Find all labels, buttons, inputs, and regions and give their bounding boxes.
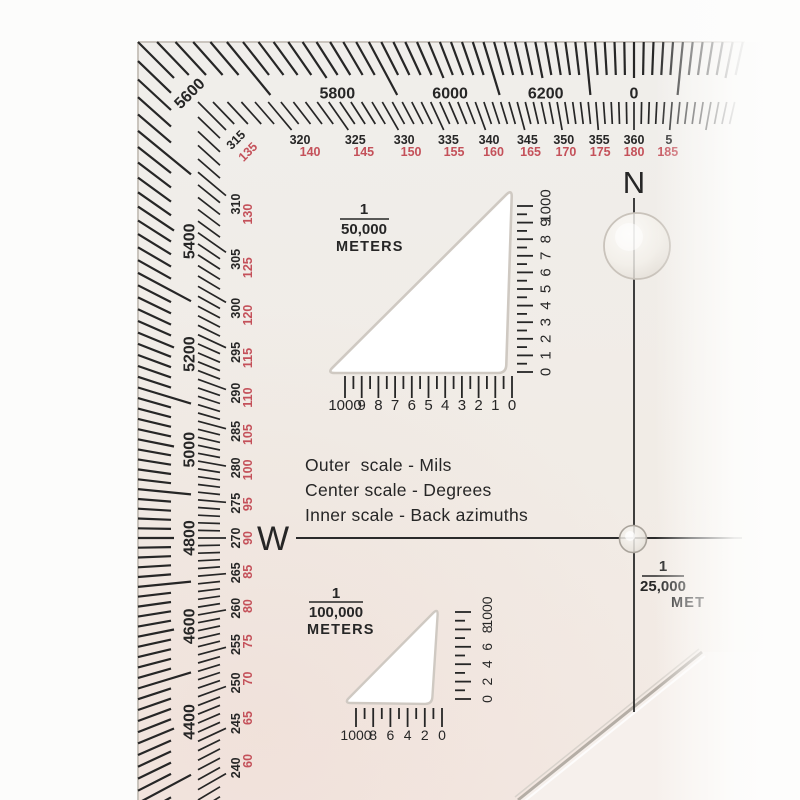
svg-text:0: 0 [538,368,555,376]
svg-text:6: 6 [479,643,495,651]
svg-text:8: 8 [369,727,377,743]
svg-text:6: 6 [408,397,416,414]
svg-text:155: 155 [444,145,465,159]
svg-text:5: 5 [424,397,432,414]
svg-text:110: 110 [241,387,255,407]
left-margin [0,0,138,800]
svg-text:175: 175 [590,145,611,159]
svg-text:4: 4 [404,727,412,743]
svg-text:4800: 4800 [182,520,199,556]
legend-outer-scale: Outer scale - Mils [305,455,452,475]
svg-text:4: 4 [538,301,555,309]
svg-text:5000: 5000 [182,432,199,468]
svg-text:2: 2 [479,677,495,685]
fraction-numerator-100000: 1 [332,585,340,602]
svg-text:0: 0 [438,727,446,743]
protractor-photo: 4400460048005000520054005600580060006200… [0,0,800,800]
protractor-svg: 4400460048005000520054005600580060006200… [0,0,800,800]
svg-text:130: 130 [241,204,255,225]
svg-text:0: 0 [630,86,639,103]
svg-text:7: 7 [391,397,399,414]
fraction-denominator-50000: 50,000 [341,221,387,238]
svg-text:80: 80 [241,599,255,613]
svg-text:165: 165 [520,145,541,159]
svg-text:1: 1 [491,397,499,414]
svg-text:150: 150 [401,145,422,159]
svg-text:65: 65 [241,711,255,725]
hole-highlight [625,531,635,541]
svg-text:90: 90 [241,531,255,545]
svg-text:115: 115 [241,348,255,368]
svg-text:5200: 5200 [182,336,199,372]
svg-text:4: 4 [441,397,449,414]
svg-text:0: 0 [508,397,516,414]
svg-text:5400: 5400 [182,223,199,259]
svg-text:85: 85 [241,565,255,579]
svg-text:8: 8 [374,397,382,414]
svg-text:5: 5 [538,285,555,293]
unit-label-50000: METERS [336,239,404,255]
svg-text:180: 180 [624,145,645,159]
overexposed-band [655,0,800,800]
svg-text:9: 9 [358,397,366,414]
svg-text:60: 60 [241,754,255,768]
svg-text:70: 70 [241,672,255,686]
svg-text:6: 6 [538,268,555,276]
dome-highlight [615,223,643,251]
svg-text:4600: 4600 [182,608,199,644]
svg-text:2: 2 [474,397,482,414]
svg-text:125: 125 [241,257,255,278]
svg-text:8: 8 [538,235,555,243]
svg-text:7: 7 [538,252,555,260]
svg-text:100: 100 [241,459,255,480]
fraction-numerator-50000: 1 [360,201,368,218]
svg-text:75: 75 [241,634,255,648]
svg-text:6200: 6200 [528,86,564,103]
fraction-denominator-100000: 100,000 [309,604,363,621]
svg-text:5800: 5800 [320,86,356,103]
svg-text:95: 95 [241,497,255,511]
svg-text:0: 0 [479,695,495,703]
svg-text:4: 4 [479,660,495,668]
svg-text:145: 145 [353,145,374,159]
legend-inner-scale: Inner scale - Back azimuths [305,505,528,525]
svg-text:160: 160 [483,145,504,159]
west-label: W [257,520,289,558]
svg-text:6: 6 [387,727,395,743]
svg-text:120: 120 [241,305,255,326]
svg-text:6000: 6000 [432,86,468,103]
svg-text:105: 105 [241,424,255,445]
svg-text:1000: 1000 [340,727,371,743]
svg-text:4400: 4400 [182,704,199,740]
svg-text:3: 3 [538,318,555,326]
legend-center-scale: Center scale - Degrees [305,480,492,500]
north-label: N [623,165,645,200]
svg-text:170: 170 [555,145,576,159]
svg-text:1000: 1000 [479,596,495,627]
svg-text:2: 2 [421,727,429,743]
svg-text:3: 3 [458,397,466,414]
svg-text:2: 2 [538,335,555,343]
unit-label-100000: METERS [307,622,375,638]
svg-text:140: 140 [300,145,321,159]
svg-text:1: 1 [538,351,555,359]
svg-text:1000: 1000 [538,189,555,222]
